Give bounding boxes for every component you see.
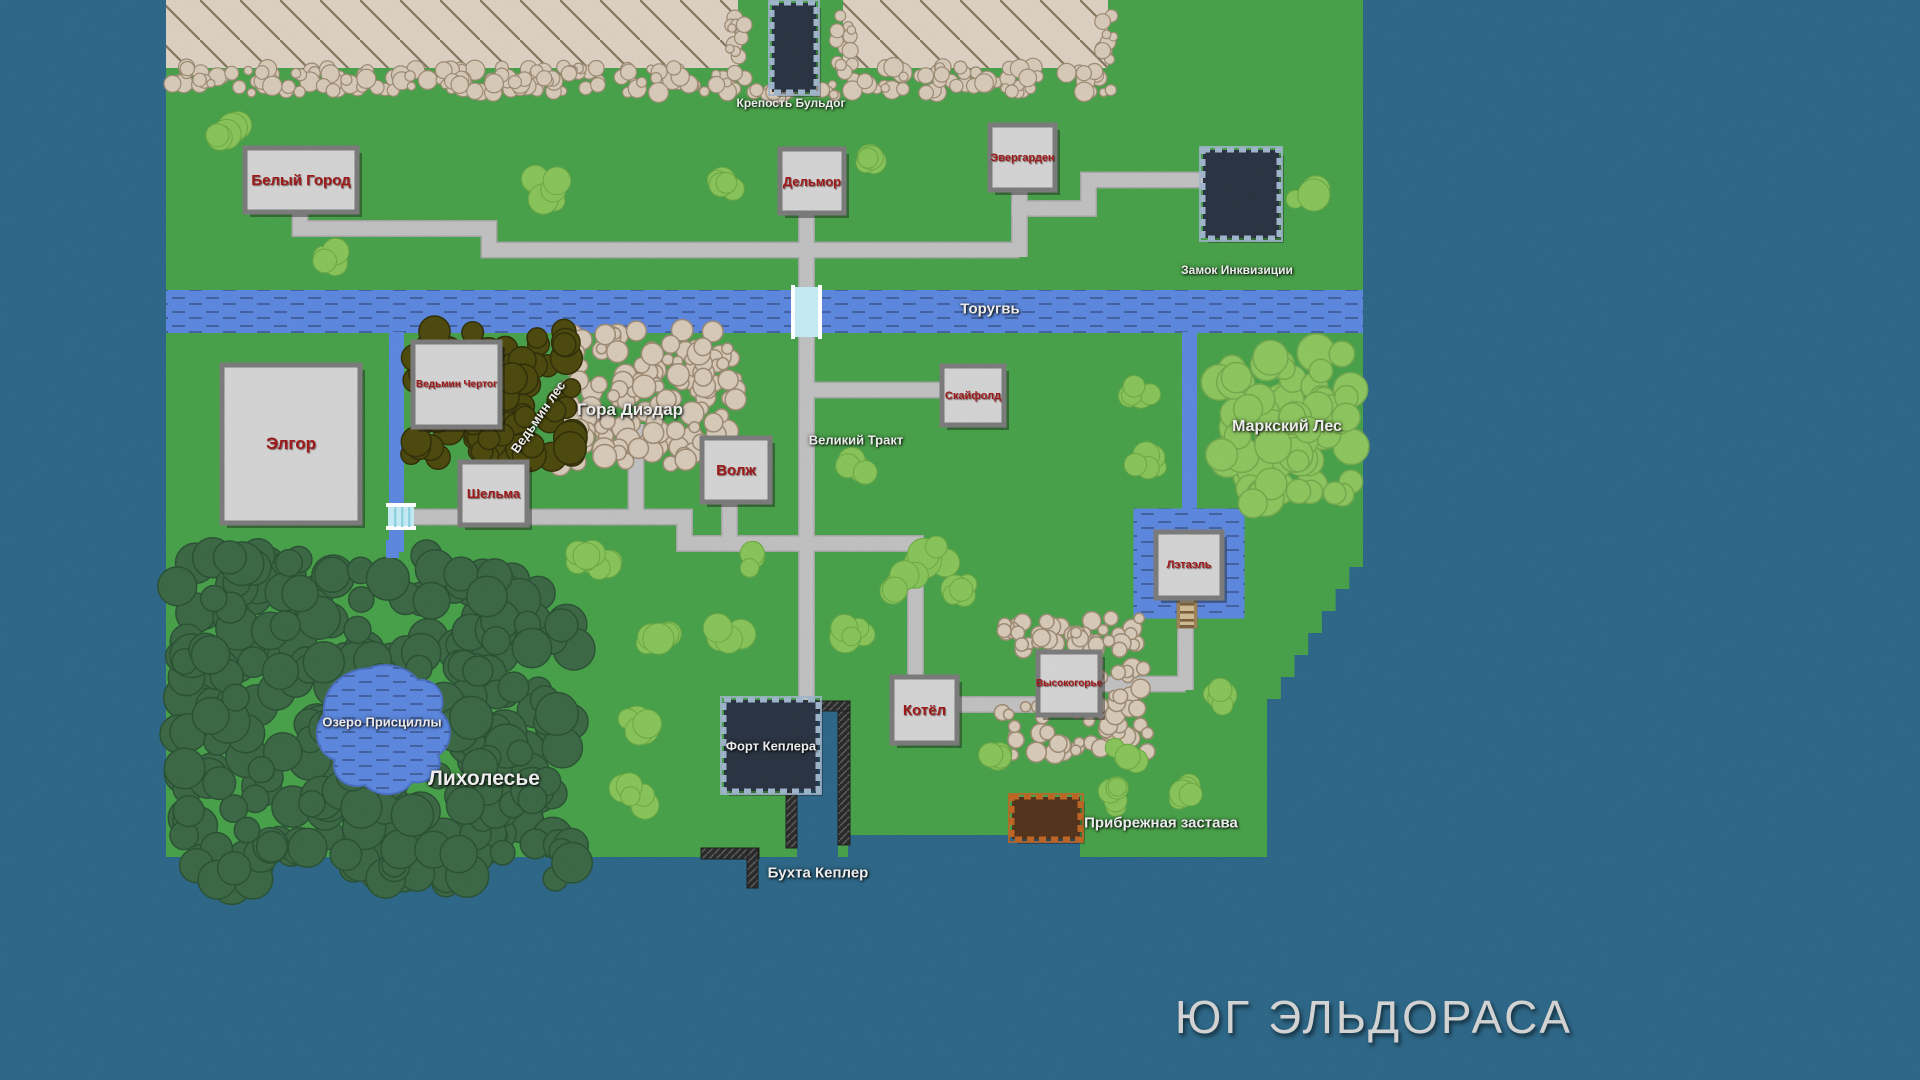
castle-label-zamok-inkvizicii: Замок Инквизиции <box>1181 263 1293 277</box>
settlement-label-vysokogorye: Высокогорье <box>1036 678 1102 689</box>
settlement-label-letael: Лэтаэль <box>1167 559 1212 571</box>
region-label-likholesye: Лихолесье <box>428 767 540 791</box>
settlement-label-kotel: Котёл <box>903 702 946 719</box>
settlement-label-evergarden: Эвергарден <box>990 152 1054 164</box>
region-label-velikiy-trakt: Великий Тракт <box>809 433 903 448</box>
castle-krepost-buldog[interactable] <box>772 3 816 92</box>
region-label-torugv: Торугвь <box>960 301 1019 318</box>
settlement-vedmin-chertog[interactable]: Ведьмин Чертог <box>413 342 500 427</box>
settlement-volzh[interactable]: Волж <box>702 438 770 502</box>
settlement-label-belyi-gorod: Белый Город <box>251 172 350 189</box>
settlement-belyi-gorod[interactable]: Белый Город <box>245 148 357 212</box>
settlement-label-skyfold: Скайфолд <box>945 390 1001 402</box>
settlement-elgor[interactable]: Элгор <box>222 365 360 523</box>
settlement-kotel[interactable]: Котёл <box>892 677 957 743</box>
region-label-ozero-priscilly: Озеро Присциллы <box>322 715 441 730</box>
settlement-delmor[interactable]: Дельмор <box>780 149 844 213</box>
settlement-shelma[interactable]: Шельма <box>460 462 527 525</box>
map-title: ЮГ ЭЛЬДОРАСА <box>1175 990 1573 1044</box>
region-label-bukhta-kepler: Бухта Кеплер <box>768 865 869 882</box>
settlement-label-shelma: Шельма <box>467 486 520 501</box>
region-label-vedmin-les: Ведьмин лес <box>508 378 569 456</box>
settlement-label-volzh: Волж <box>716 462 756 479</box>
settlement-evergarden[interactable]: Эвергарден <box>990 125 1055 190</box>
settlement-vysokogorye[interactable]: Высокогорье <box>1038 652 1100 715</box>
settlement-letael[interactable]: Лэтаэль <box>1156 532 1222 598</box>
castle-zamok-inkvizicii[interactable] <box>1203 150 1279 238</box>
settlement-skyfold[interactable]: Скайфолд <box>942 366 1004 425</box>
castle-label-krepost-buldog: Крепость Бульдог <box>737 96 846 110</box>
region-label-gora-diezdar: Гора Диэдар <box>577 400 683 420</box>
castle-fort-keplera[interactable] <box>724 700 818 791</box>
region-label-markskiy-les: Маркский Лес <box>1232 418 1342 436</box>
castle-label-pribrezhnaya-zastava: Прибрежная застава <box>1084 815 1238 832</box>
castle-pribrezhnaya-zastava[interactable] <box>1012 797 1080 839</box>
settlement-label-vedmin-chertog: Ведьмин Чертог <box>416 379 497 390</box>
map-canvas: Белый ГородДельморЭвергарденЭлгорВедьмин… <box>0 0 1920 1080</box>
settlement-label-elgor: Элгор <box>266 434 316 454</box>
map-labels-layer: Белый ГородДельморЭвергарденЭлгорВедьмин… <box>0 0 1920 1080</box>
settlement-label-delmor: Дельмор <box>783 174 841 189</box>
